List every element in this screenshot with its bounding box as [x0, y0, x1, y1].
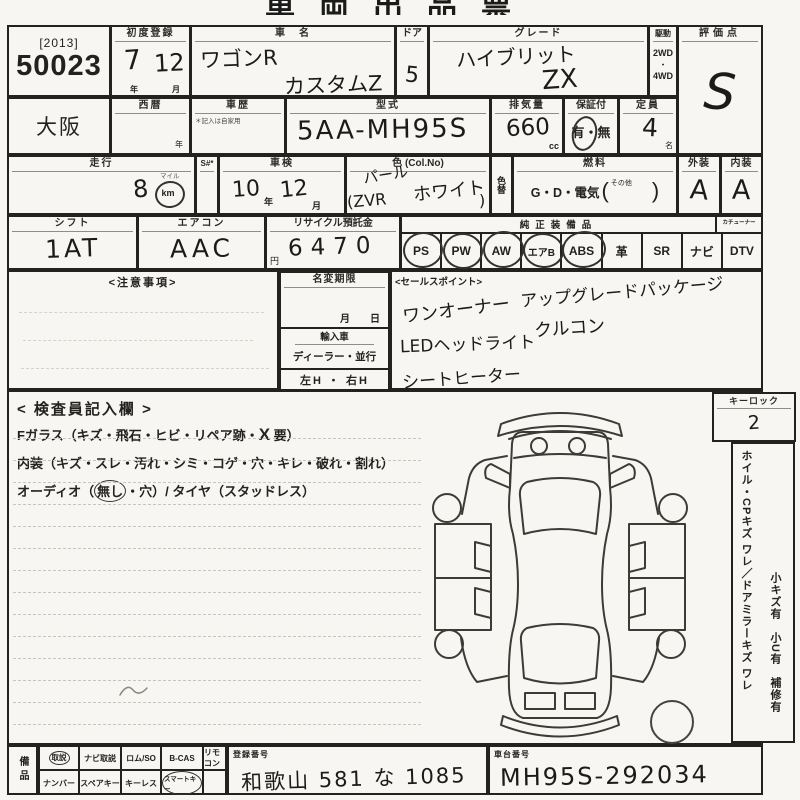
model-code-label: 型式 [290, 100, 486, 114]
registration-cell: 登録番号 和歌山 581 な 1085 [227, 745, 488, 795]
first-reg-month: 12 [153, 48, 185, 78]
car-history-note: ＊記入は自家用 [195, 115, 284, 125]
inspector-line1-prefix: Fガラス（キズ・飛石・ヒビ・リペア跡・ [17, 428, 259, 443]
color-change-cell: 色替 [490, 155, 513, 215]
exterior-value: A [688, 174, 709, 206]
aircon-value: AAC [169, 233, 233, 263]
car-name-line2: カスタムZ [284, 67, 383, 100]
dealer-parallel-line: ディーラー・並行 [281, 345, 388, 370]
inspector-ruled-line [13, 438, 421, 439]
inspector-line1-suffix: 要） [274, 428, 300, 443]
equipment-item-sr: SR [641, 234, 681, 268]
sales-point-item: クルコン [533, 312, 606, 343]
displacement-unit: cc [549, 141, 559, 151]
notes-label: <注意事項> [9, 274, 277, 290]
equip-grid-item-navi-manual: ナビ取説 [78, 747, 120, 769]
shift-cell: シフト 1AT [7, 215, 138, 270]
interior-cell: 内装 A [720, 155, 763, 215]
auction-house: 大阪 [36, 111, 82, 141]
name-change-box: 名変期限 月 日 輸入車 ディーラー・並行 左H ・ 右H [278, 270, 391, 392]
inspector-ruled-line [13, 614, 421, 615]
name-change-date-line: 月 日 [281, 310, 388, 329]
car-name-cell: 車 名 ワゴンR カスタムZ [190, 25, 396, 97]
recycle-label: リサイクル預託金 [270, 218, 396, 232]
shaken-month-unit: 月 [312, 199, 321, 212]
first-registration-label: 初度登録 [115, 28, 186, 42]
lot-cell: [2013] 50023 [7, 25, 111, 97]
seireki-cell: 西暦 年 [110, 97, 191, 155]
equipment-label: 純正装備品 [402, 217, 715, 232]
color-cell: 色 (Col.No) パール ホワイト (ZVR ) [345, 155, 491, 215]
side-note-scratch: 小キズ有 小U有 補修有 [767, 572, 783, 740]
key-lock-box: キーロック 2 [712, 392, 796, 442]
chassis-label: 車台番号 [494, 749, 761, 760]
displacement-label: 排気量 [495, 100, 559, 114]
equip-items-grid: 取説 ナビ取説 ロム/SO B-CAS リモコン ナンバー スペアキー キーレス… [38, 745, 227, 795]
exterior-cell: 外装 A [677, 155, 721, 215]
inspector-ruled-line [13, 526, 421, 527]
import-label: 輸入車 [295, 329, 374, 345]
first-registration-cell: 初度登録 7 12 年 月 [110, 25, 191, 97]
interior-value: A [732, 174, 752, 206]
seireki-label: 西暦 [115, 100, 186, 114]
capacity-cell: 定員 4 名 [618, 97, 678, 155]
color-close-paren: ) [479, 191, 485, 210]
color-code: (ZVR [346, 189, 387, 211]
displacement-value: 660 [505, 114, 550, 142]
lot-year: [2013] [9, 36, 109, 50]
equip-items-label: 備品 [15, 756, 30, 784]
shift-value: 1AT [44, 233, 100, 264]
inspector-ruled-line [13, 702, 421, 703]
registration-label: 登録番号 [233, 749, 486, 760]
mileage-cell: 走行 8 マイル km [7, 155, 196, 215]
equipment-item-dtv: DTV [721, 234, 761, 268]
equip-grid-item-number: ナンバー [40, 771, 78, 795]
warranty-label: 保証付 [568, 100, 614, 114]
car-history-label: 車歴 [195, 100, 281, 114]
grade-line2: ZX [541, 64, 579, 96]
sheet-title: 車両出品票 [205, 0, 595, 15]
chassis-cell: 車台番号 MH95S-292034 [488, 745, 763, 795]
sales-point-item: シートヒーター [401, 360, 521, 393]
s-number-label: S#* [200, 158, 214, 172]
shaken-label: 車検 [223, 158, 341, 172]
equip-grid-item-sparekey: スペアキー [78, 771, 120, 795]
registration-value: 和歌山 581 な 1085 [241, 759, 467, 797]
mileage-mile-label: マイル [160, 170, 180, 180]
fuel-label: 燃料 [517, 158, 673, 172]
capacity-unit: 名 [665, 140, 673, 151]
equip-grid-item-rom: ロム/SO [120, 747, 160, 769]
auction-sheet: 車両出品票 [2013] 50023 初度登録 7 12 年 月 車 名 ワゴン… [0, 0, 800, 800]
inspector-line3-prefix: オーディオ（ [17, 484, 94, 499]
shift-label: シフト [12, 218, 133, 232]
fuel-value: G・D・電気 [531, 182, 600, 201]
displacement-cell: 排気量 660 cc [490, 97, 564, 155]
car-name-line1: ワゴンR [200, 42, 279, 75]
inspector-ruled-line [13, 460, 421, 461]
car-name-label: 車 名 [195, 28, 391, 42]
equip-grid-item-keyless: キーレス [120, 771, 160, 795]
side-note-wheel: ホイル・CPキズ ワレ／ドアミラーキズ ワレ [738, 450, 754, 738]
equip-grid-item-empty [202, 771, 225, 795]
notes-ruled-line [21, 368, 269, 369]
side-notes-column: ホイル・CPキズ ワレ／ドアミラーキズ ワレ 小キズ有 小U有 補修有 [731, 442, 795, 743]
inspector-ruled-line [13, 570, 421, 571]
shaken-year-unit: 年 [264, 195, 273, 208]
inspector-ruled-line [13, 680, 421, 681]
inspector-ruled-line [13, 504, 421, 505]
lot-number: 50023 [9, 50, 109, 82]
inspector-ruled-line [13, 724, 421, 725]
equipment-item-navi: ナビ [681, 234, 721, 268]
notes-ruled-line [23, 340, 253, 341]
smartkey-circled: スマートキー [162, 771, 202, 795]
equip-grid-item-manual: 取説 [40, 747, 78, 769]
notes-ruled-line [19, 312, 264, 313]
door-value: 5 [404, 62, 421, 88]
first-reg-year: 7 [123, 44, 142, 76]
equip-grid-item-remote: リモコン [202, 747, 225, 769]
mileage-value: 8 [132, 174, 150, 203]
inspector-ruled-line [13, 636, 421, 637]
equip-items-label-cell: 備品 [7, 745, 38, 795]
drive-cell: 駆動 2WD ・ 4WD [648, 25, 678, 97]
car-history-cell: 車歴 ＊記入は自家用 [190, 97, 286, 155]
sales-point-item: ワンオーナー [401, 290, 511, 329]
key-lock-value: 2 [747, 412, 761, 435]
chassis-value: MH95S-292034 [500, 760, 709, 792]
sales-point-item: LEDヘッドライト [400, 328, 536, 358]
fuel-close-paren: ) [652, 178, 659, 204]
capacity-value: 4 [641, 113, 658, 143]
aircon-label: エアコン [142, 218, 261, 232]
inspector-ruled-line [13, 658, 421, 659]
equip-grid-item-smartkey: スマートキー [160, 771, 202, 795]
score-cell: 評価点 S [677, 25, 763, 155]
drive-dot: ・ [650, 58, 676, 71]
manual-circled: 取説 [49, 751, 70, 765]
shaken-month: 12 [279, 176, 309, 204]
recycle-cell: リサイクル預託金 6470 円 [265, 215, 401, 270]
color-change-label: 色替 [495, 176, 508, 194]
door-cell: ドア 5 [395, 25, 429, 97]
exterior-label: 外装 [682, 158, 716, 172]
inspector-ruled-line [13, 548, 421, 549]
interior-label: 内装 [725, 158, 758, 172]
inspector-line3-suffix: ・穴）/ タイヤ（スタッドレス） [126, 484, 315, 499]
inspector-stamp-circle [650, 700, 694, 744]
model-code-value: 5AA-MH95S [297, 114, 469, 147]
equipment-item-leather: 革 [601, 234, 641, 268]
shaken-year: 10 [231, 176, 261, 203]
inspector-ruled-line [13, 592, 421, 593]
shaken-cell: 車検 10 年 12 月 [218, 155, 346, 215]
sales-points-cell: <セールスポイント> アップグレードパッケージ ワンオーナー クルコン LEDヘ… [390, 270, 763, 390]
fuel-other-label: その他 [611, 178, 632, 188]
model-code-cell: 型式 5AA-MH95S [285, 97, 491, 155]
first-reg-year-unit: 年 [130, 84, 138, 95]
grade-cell: グレード ハイブリット ZX [428, 25, 649, 97]
warranty-cell: 保証付 有・無 [563, 97, 619, 155]
door-label: ドア [400, 28, 424, 42]
equip-grid-item-bcas: B-CAS [160, 747, 202, 769]
equipment-tuner-label: カチューナー [715, 217, 761, 232]
handle-position-line: 左H ・ 右H [281, 370, 388, 389]
aircon-cell: エアコン AAC [137, 215, 266, 270]
inspector-line1-x-mark: X [259, 425, 270, 444]
fuel-cell: 燃料 G・D・電気 ( その他 ) [512, 155, 678, 215]
score-value: S [702, 62, 738, 122]
drive-2wd: 2WD [650, 48, 676, 58]
car-damage-diagram [413, 396, 709, 740]
sheet-title-text: 車両出品票 [205, 0, 595, 15]
first-reg-month-unit: 月 [172, 84, 180, 95]
drive-4wd: 4WD [650, 71, 676, 81]
seireki-unit: 年 [175, 139, 183, 150]
score-label: 評価点 [682, 28, 758, 42]
inspector-ruled-line [13, 482, 421, 483]
color-line2: ホワイト [412, 173, 486, 206]
recycle-value: 6470 [287, 232, 378, 261]
key-lock-label: キーロック [717, 395, 791, 409]
recycle-unit: 円 [270, 254, 279, 267]
notes-cell: <注意事項> [7, 270, 279, 390]
auction-house-cell: 大阪 [7, 97, 111, 155]
drive-label: 駆動 [653, 28, 673, 42]
inspector-audio-none-circled: 無し [94, 480, 126, 502]
faint-squiggle-mark [117, 680, 151, 700]
name-change-label: 名変期限 [284, 274, 385, 288]
fuel-open-paren: ( [602, 178, 609, 204]
s-number-cell: S#* [195, 155, 219, 215]
